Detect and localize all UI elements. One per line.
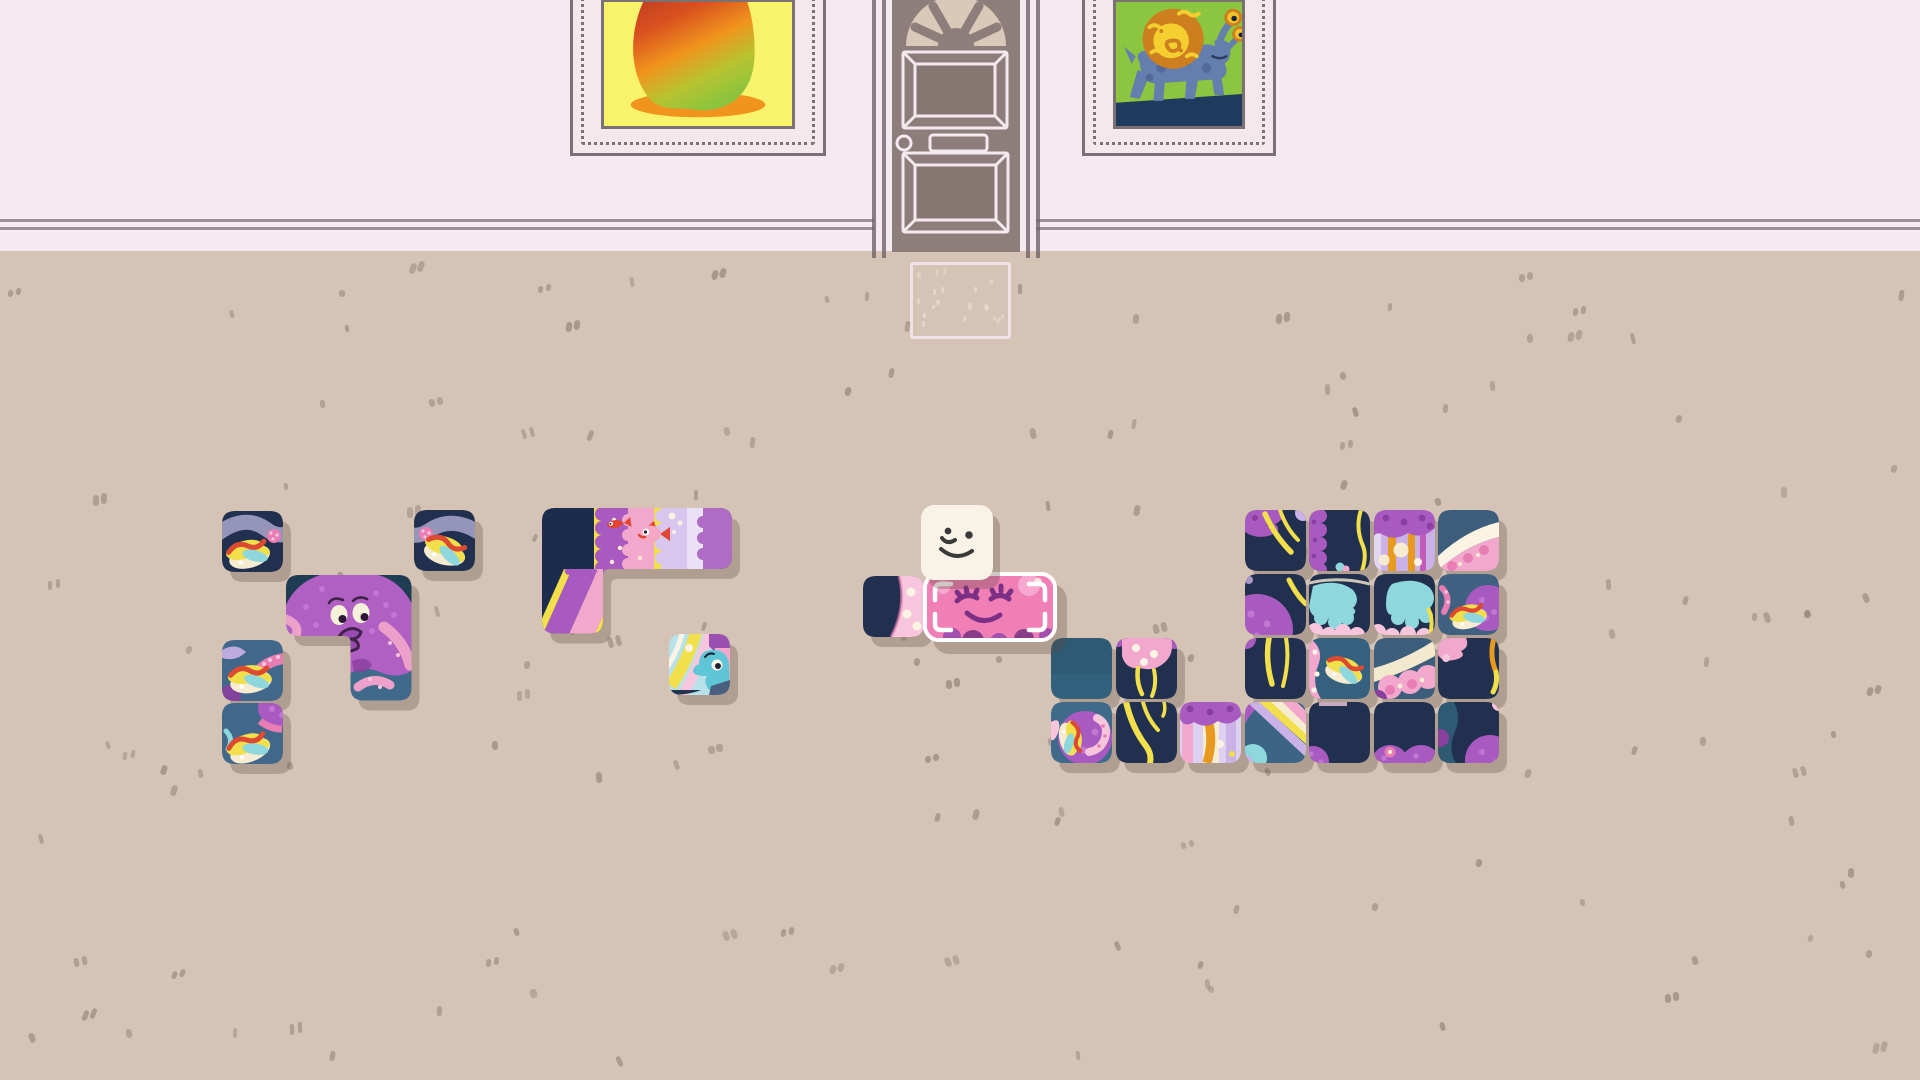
- floor-speckle: [1572, 307, 1578, 316]
- wilmot-character[interactable]: [921, 505, 993, 580]
- floor-speckle: [1665, 994, 1671, 1003]
- front-door: [864, 0, 1048, 262]
- floor-speckle: [940, 287, 944, 293]
- floor-speckle: [1325, 384, 1330, 395]
- floor-speckle: [916, 298, 919, 304]
- piece-navy-wedge[interactable]: [863, 576, 924, 637]
- piece-r1c5[interactable]: [1374, 574, 1435, 635]
- baseboard-line: [0, 219, 874, 222]
- floor-speckle: [708, 745, 715, 754]
- piece-r0c6[interactable]: [1438, 510, 1499, 571]
- wilmot-face: [921, 505, 993, 580]
- floor-speckle: [125, 1028, 132, 1038]
- snail-beast-artwork: [1116, 2, 1242, 126]
- piece-r3c5[interactable]: [1374, 702, 1435, 763]
- piece-r2c6[interactable]: [1438, 638, 1499, 699]
- piece-r1c3[interactable]: [1245, 574, 1306, 635]
- piece-jellyfish-4[interactable]: [222, 703, 283, 764]
- floor-speckle: [1673, 992, 1679, 1001]
- floor-speckle: [595, 772, 602, 783]
- floor-speckle: [232, 1028, 237, 1038]
- piece-r1c4[interactable]: [1309, 574, 1370, 635]
- floor-speckle: [1699, 736, 1706, 745]
- piece-r2c1[interactable]: [1116, 638, 1177, 699]
- floor-speckle: [1848, 868, 1854, 878]
- floor-speckle: [1132, 313, 1139, 323]
- floor-speckle: [1527, 272, 1533, 280]
- painting-snail-beast: [1082, 0, 1276, 156]
- piece-jellyfish-1[interactable]: [222, 511, 283, 572]
- piece-jellyfish-3[interactable]: [222, 640, 283, 701]
- piece-r2c0[interactable]: [1051, 638, 1112, 699]
- game-room-scene: [0, 0, 1920, 1080]
- floor-speckle: [1387, 302, 1392, 310]
- piece-r3c2[interactable]: [1180, 702, 1241, 763]
- piece-r3c4[interactable]: [1309, 702, 1370, 763]
- piece-r3c3[interactable]: [1245, 702, 1306, 763]
- piece-r2c4[interactable]: [1309, 638, 1370, 699]
- piece-jellyfish-2[interactable]: [414, 510, 475, 571]
- piece-r0c5[interactable]: [1374, 510, 1435, 571]
- floor-speckle: [1781, 487, 1787, 498]
- floor-speckle: [1018, 284, 1023, 294]
- floor-speckle: [1519, 274, 1525, 282]
- mango-artwork: [604, 2, 792, 126]
- baseboard-line: [1036, 227, 1920, 230]
- floor-speckle: [344, 325, 349, 333]
- floor-speckle: [1489, 380, 1495, 390]
- piece-r2c3[interactable]: [1245, 638, 1306, 699]
- floor-speckle: [56, 579, 60, 588]
- floor-speckle: [932, 305, 935, 310]
- floor-speckle: [913, 657, 920, 666]
- painting-snail-canvas: [1113, 0, 1245, 129]
- piece-r2c5[interactable]: [1374, 638, 1435, 699]
- floor-speckle: [287, 762, 294, 770]
- piece-octopus[interactable]: [286, 575, 412, 701]
- floor-speckle: [1605, 579, 1611, 590]
- piece-r3c6[interactable]: [1438, 702, 1499, 763]
- piece-seahorse[interactable]: [669, 634, 730, 695]
- floor-speckle: [298, 1022, 303, 1033]
- floor-speckle: [1580, 305, 1586, 314]
- painting-mango: [570, 0, 826, 156]
- piece-reef-stripes[interactable]: [542, 508, 732, 634]
- floor-speckle: [92, 494, 99, 505]
- doormat: [910, 262, 1011, 339]
- floor-speckle: [716, 743, 723, 752]
- floor-speckle: [917, 272, 921, 278]
- floor-speckle: [1526, 334, 1532, 343]
- floor-speckle: [407, 507, 413, 517]
- floor-speckle: [864, 292, 869, 301]
- floor-speckle: [290, 1024, 295, 1035]
- piece-held-pink-face[interactable]: [923, 572, 1057, 642]
- painting-mango-canvas: [601, 0, 795, 129]
- baseboard-line: [0, 227, 874, 230]
- piece-r0c4[interactable]: [1309, 510, 1370, 571]
- floor-speckle: [1107, 429, 1114, 438]
- floor-speckle: [100, 492, 107, 503]
- floor-speckle: [1831, 731, 1837, 739]
- piece-r1c6[interactable]: [1438, 574, 1499, 635]
- floor-speckle: [945, 679, 951, 689]
- floor-speckle: [694, 490, 699, 500]
- floor-speckle: [932, 289, 936, 295]
- floor-speckle: [48, 581, 52, 590]
- floor-speckle: [923, 312, 926, 317]
- piece-r3c0[interactable]: [1051, 702, 1112, 763]
- front-door-art: [864, 0, 1048, 262]
- baseboard-line: [1036, 219, 1920, 222]
- floor-speckle: [989, 279, 992, 284]
- piece-r3c1[interactable]: [1116, 702, 1177, 763]
- floor-speckle: [953, 677, 959, 687]
- floor-speckle: [437, 1005, 442, 1015]
- piece-r0c3[interactable]: [1245, 510, 1306, 571]
